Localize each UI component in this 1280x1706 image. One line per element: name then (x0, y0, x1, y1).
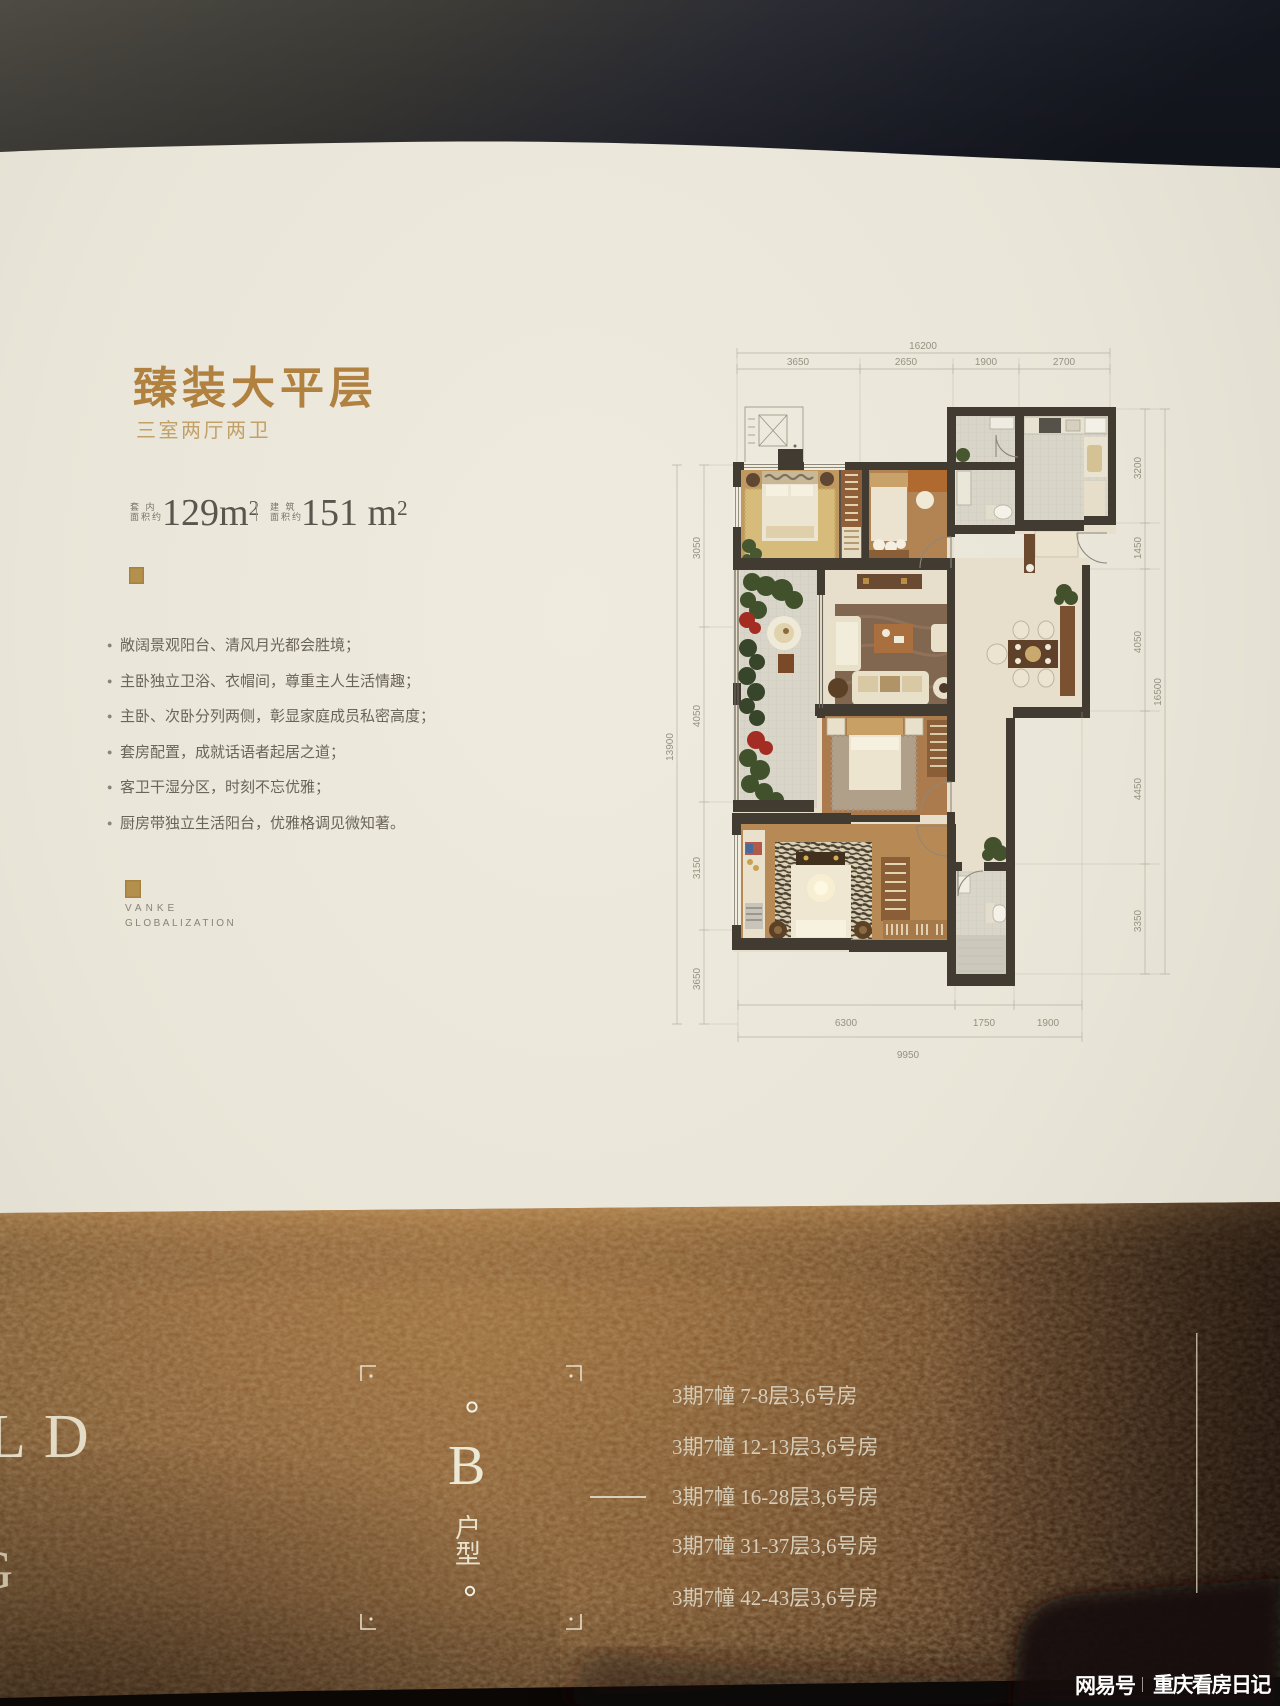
svg-text:B: B (448, 1435, 485, 1497)
svg-text:16200: 16200 (909, 341, 937, 352)
svg-text:3150: 3150 (692, 856, 703, 879)
svg-text:2700: 2700 (1053, 357, 1076, 368)
svg-text:3200: 3200 (1133, 456, 1144, 479)
svg-text:9950: 9950 (897, 1050, 920, 1061)
svg-text:3050: 3050 (692, 536, 703, 559)
svg-text:LD: LD (0, 1403, 107, 1471)
svg-text:13900: 13900 (665, 733, 676, 761)
svg-text:G: G (0, 1540, 13, 1600)
svg-text:3350: 3350 (1133, 909, 1144, 932)
svg-text:3期7幢 12-13层3,6号房: 3期7幢 12-13层3,6号房 (672, 1435, 879, 1459)
svg-text:16500: 16500 (1153, 678, 1164, 706)
svg-text:1900: 1900 (1037, 1018, 1060, 1029)
svg-text:重庆看房日记: 重庆看房日记 (1153, 1673, 1271, 1697)
svg-text:1450: 1450 (1133, 536, 1144, 559)
svg-text:1750: 1750 (973, 1018, 996, 1029)
svg-text:6300: 6300 (835, 1018, 858, 1029)
svg-text:4050: 4050 (692, 704, 703, 727)
svg-text:3期7幢 7-8层3,6号房: 3期7幢 7-8层3,6号房 (672, 1384, 858, 1408)
svg-text:3期7幢 31-37层3,6号房: 3期7幢 31-37层3,6号房 (672, 1534, 879, 1558)
svg-text:｜: ｜ (1135, 1677, 1150, 1694)
svg-text:3期7幢 16-28层3,6号房: 3期7幢 16-28层3,6号房 (672, 1485, 879, 1509)
svg-text:4450: 4450 (1133, 777, 1144, 800)
svg-text:型: 型 (455, 1540, 481, 1569)
svg-text:3650: 3650 (692, 967, 703, 990)
svg-text:户: 户 (455, 1514, 481, 1543)
svg-text:1900: 1900 (975, 357, 998, 368)
svg-text:网易号: 网易号 (1075, 1675, 1135, 1698)
svg-text:4050: 4050 (1133, 630, 1144, 653)
svg-text:2650: 2650 (895, 357, 918, 368)
svg-text:3650: 3650 (787, 357, 810, 368)
svg-text:3期7幢 42-43层3,6号房: 3期7幢 42-43层3,6号房 (672, 1586, 879, 1610)
